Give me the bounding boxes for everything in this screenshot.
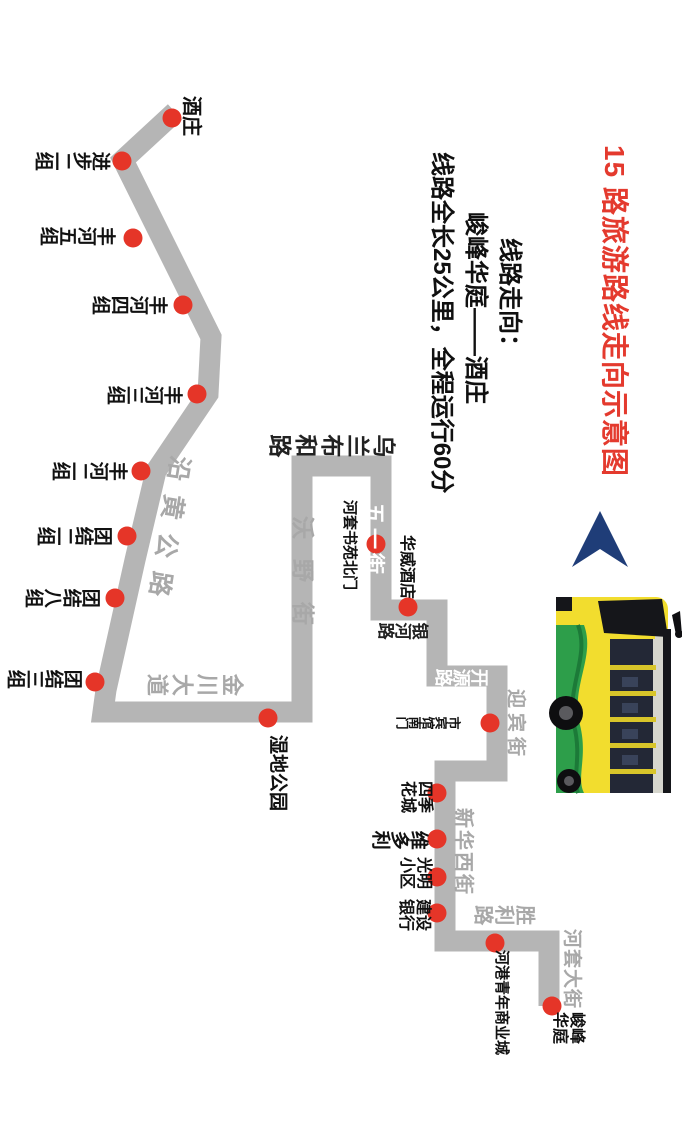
- bus-part: [622, 729, 638, 739]
- stop-label: 华威酒店: [397, 535, 414, 599]
- stop-dot: [124, 229, 143, 248]
- route-map-canvas: 酒庄进步二组丰河五组丰河四组丰河三组丰河二组团结二组团结八组团结三组湿地公园河套…: [0, 0, 682, 1140]
- stop-label: 丰河三组: [107, 383, 183, 403]
- stop-label: 市宾馆南门: [396, 715, 461, 729]
- bus-part: [622, 703, 638, 713]
- stop-label: 维多利: [372, 828, 429, 848]
- stop-dot: [132, 462, 151, 481]
- bus-part: [610, 769, 656, 774]
- stop-label: 团结八组: [25, 586, 101, 606]
- bus-part: [610, 691, 656, 696]
- route-length-label: 线路全长25公里，全程运行60分: [428, 152, 453, 493]
- stop-label: 河套书苑北门: [341, 500, 357, 590]
- bus-part: [663, 629, 671, 793]
- bus-part: [622, 677, 638, 687]
- stop-label: 湿地公园: [267, 735, 287, 811]
- north-arrow-icon: [560, 505, 640, 575]
- stop-label: 团结三组: [7, 667, 83, 687]
- stop-dot: [481, 714, 500, 733]
- bus-part: [610, 743, 656, 748]
- route-direction-label: 线路走向：: [496, 238, 521, 358]
- bus-part: [655, 629, 663, 793]
- road-label: 河套大街: [561, 929, 581, 1009]
- road-label: 胜利路: [473, 902, 536, 923]
- stop-dot: [259, 709, 278, 728]
- bus-part: [610, 665, 656, 670]
- road-label: 开源路: [435, 667, 489, 686]
- bus-part: [622, 755, 638, 765]
- road-label: 新华西街: [452, 808, 473, 896]
- stop-label: 建设 银行: [397, 899, 430, 931]
- road-label: 迎宾街: [505, 689, 525, 761]
- stop-dot: [106, 589, 125, 608]
- road-label: 银河路: [378, 620, 429, 638]
- stop-label: 团结二组: [37, 524, 113, 544]
- bus-part: [598, 599, 668, 637]
- map-title: 15 路旅游路线走向示意图: [600, 145, 629, 477]
- bus-part: [556, 597, 572, 611]
- stop-dot: [118, 527, 137, 546]
- stop-label: 四季 花城: [399, 781, 432, 813]
- road-label: 五一街: [362, 503, 384, 578]
- road-label: 金川大道: [144, 671, 244, 694]
- stop-dot: [174, 296, 193, 315]
- bus-graphic: [549, 597, 682, 793]
- stop-label: 进步二组: [35, 149, 111, 169]
- bus-illustration: [548, 595, 682, 795]
- stop-dot: [163, 109, 182, 128]
- stop-label: 丰河四组: [92, 293, 168, 313]
- stop-label: 丰河二组: [52, 459, 128, 479]
- stop-label: 光明 小区: [398, 857, 431, 889]
- bus-part: [564, 776, 574, 786]
- road-label: 沃野街: [290, 516, 314, 645]
- bus-part: [559, 706, 573, 720]
- stop-dot: [86, 673, 105, 692]
- road-label: 乌兰布和路: [266, 431, 396, 455]
- stop-label: 酒庄: [180, 96, 201, 136]
- stop-label: 峻峰 华庭: [551, 1012, 584, 1044]
- stop-dot: [428, 830, 447, 849]
- stop-dot: [113, 152, 132, 171]
- bus-part: [610, 717, 656, 722]
- stop-label: 河港青年商业城: [493, 950, 509, 1055]
- stop-dot: [188, 385, 207, 404]
- stop-dot: [399, 598, 418, 617]
- stop-label: 丰河五组: [40, 224, 116, 244]
- north-arrow-shape: [572, 511, 628, 567]
- route-endpoints-label: 峻峰华庭——酒庄: [462, 212, 487, 404]
